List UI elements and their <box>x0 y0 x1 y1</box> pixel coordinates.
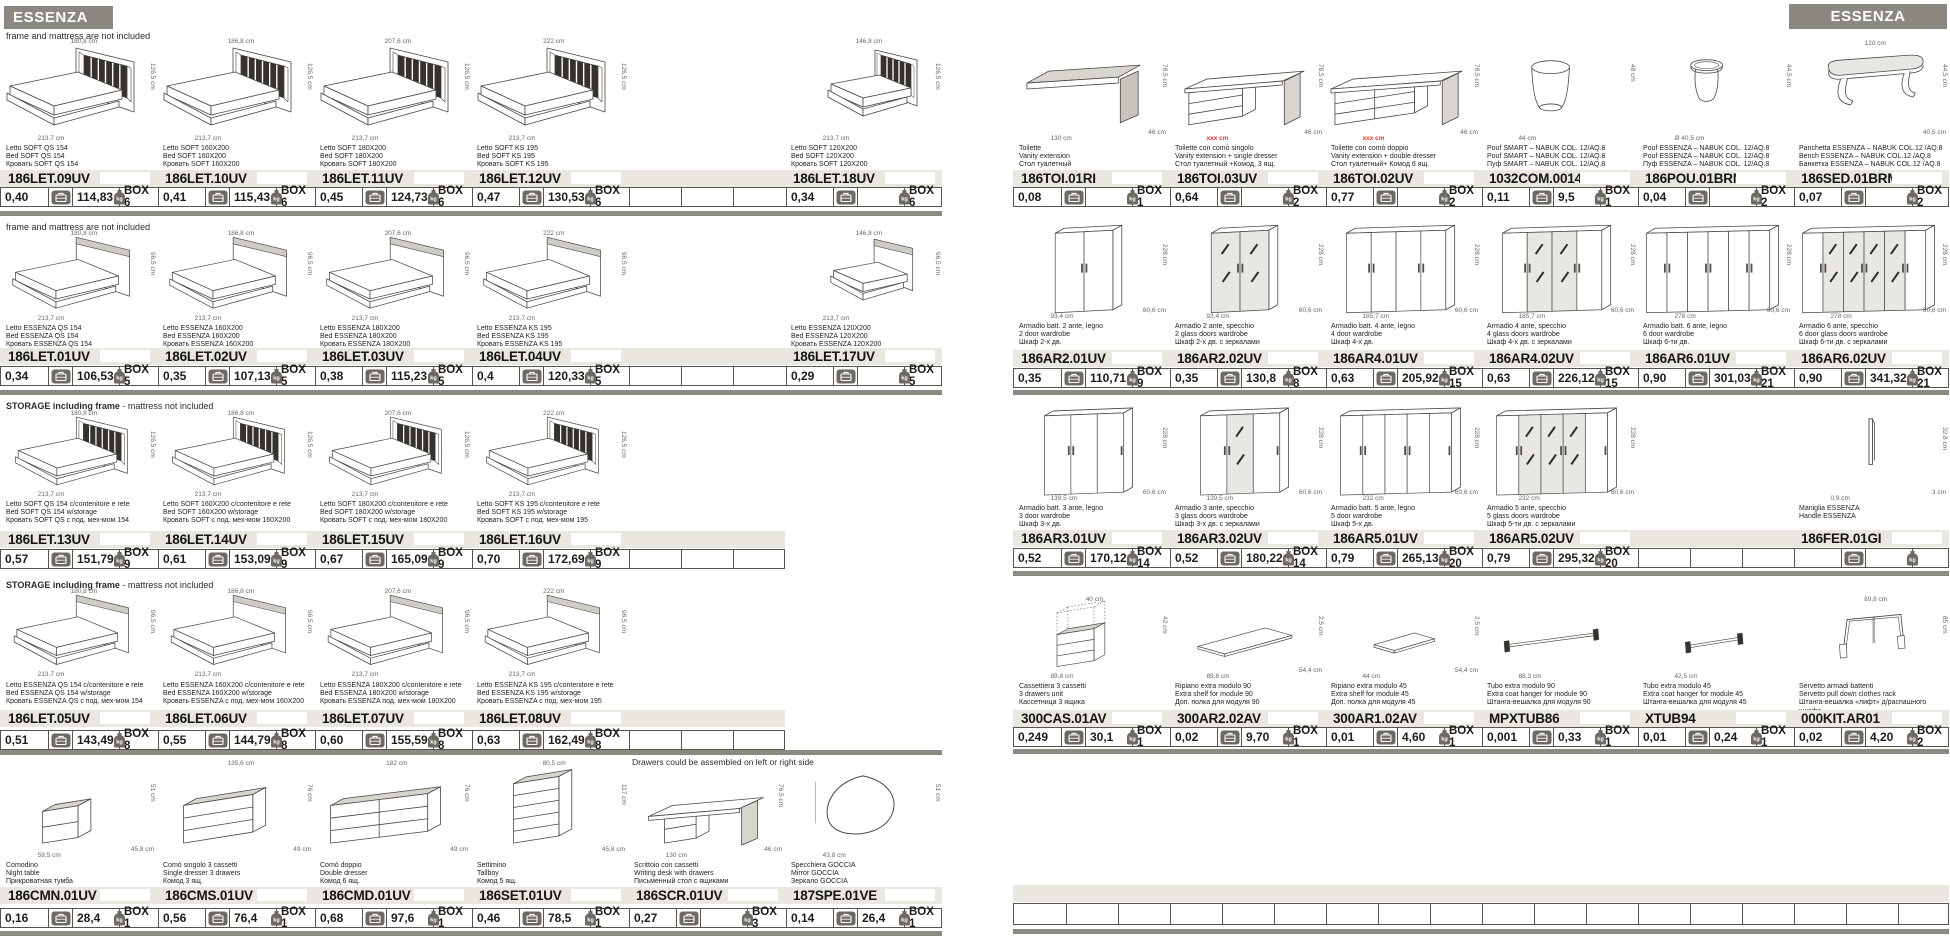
product-drawing-card: 146,8 cm126,5 cm213,7 cm <box>785 38 942 142</box>
price-box <box>100 889 150 901</box>
svg-text:kg: kg <box>1441 378 1447 384</box>
dimension-label: 89,8 cm <box>1864 596 1887 603</box>
product-desc-en: 2 glass doors wardrobe <box>1175 331 1323 339</box>
weight-value: 120,33 <box>548 369 585 383</box>
weight-icon: kg <box>270 189 283 205</box>
product-desc-en: 4 door wardrobe <box>1331 331 1479 339</box>
product-desc-ru: Шкаф 3-х дв. с зеркалами <box>1175 521 1323 529</box>
volume-icon-cell <box>1373 188 1397 206</box>
product-desc-ru: Шкаф 2-х дв. <box>1019 339 1167 347</box>
price-box <box>571 712 621 724</box>
volume-cell: 0,16 <box>1 909 48 927</box>
weight-value: 114,83 <box>77 190 113 204</box>
dimension-label: 96,5 cm <box>149 252 156 275</box>
product-code: 1032COM.00144 <box>1489 171 1589 186</box>
weight-icon: kg <box>584 551 597 567</box>
volume-icon-cell <box>1529 188 1553 206</box>
weight-value: 130,8 <box>1246 371 1276 385</box>
empty-cell <box>681 188 733 206</box>
weight-icon: kg <box>1594 189 1607 205</box>
product-code: XTUB94 <box>1645 711 1696 726</box>
weight-icon: kg <box>270 189 283 205</box>
dimension-label: 126,5 cm <box>306 431 313 458</box>
weight-cell: 0,33kg <box>1553 728 1600 746</box>
volume-icon <box>522 911 542 926</box>
svg-text:kg: kg <box>116 559 122 565</box>
weight-icon: kg <box>1906 370 1919 386</box>
weight-icon: kg <box>1282 370 1295 386</box>
volume-cell: 0,51 <box>1 731 48 749</box>
spec-row: 0,51143,49kgBOX 80,55144,79kgBOX 80,6015… <box>0 730 785 750</box>
weight-icon: kg <box>1750 370 1763 386</box>
code-band: 186AR3.01UV186AR3.02UV186AR5.01UV186AR5.… <box>1013 530 1949 547</box>
svg-text:kg: kg <box>744 918 750 924</box>
product-desc-en: Bed SOFT 180X200 w/storage <box>320 509 469 517</box>
weight-icon: kg <box>113 732 126 748</box>
weight-value: 162,49 <box>548 733 585 747</box>
section-divider-bar <box>0 931 942 936</box>
volume-icon <box>1220 371 1240 386</box>
empty-cell <box>1378 904 1430 924</box>
empty-cell <box>1274 904 1326 924</box>
dimension-label: 222 cm <box>543 38 564 45</box>
product-description: Armadio batt. 5 ante, legno5 door wardro… <box>1331 505 1479 530</box>
product-desc-it: Letto ESSENZA KS 195 c/contenitore e ret… <box>477 682 626 690</box>
weight-value: 226,12 <box>1558 371 1595 385</box>
product-desc-en: Double dresser <box>320 870 469 878</box>
product-drawing-card: 207,6 cm126,5 cm213,7 cm <box>314 410 471 498</box>
price-box <box>257 533 307 545</box>
volume-icon <box>365 369 385 384</box>
weight-icon: kg <box>1126 729 1139 745</box>
product-code: 186TOI.01RI <box>1021 171 1096 186</box>
product-desc-en: Bed ESSENZA 180X200 <box>320 333 469 341</box>
price-box <box>257 712 307 724</box>
volume-cell: 0,79 <box>1326 549 1373 567</box>
handle-drawing <box>1793 403 1949 502</box>
weight-cell: 120,33kg <box>543 367 590 385</box>
product-code: 186TOI.03UV <box>1177 171 1257 186</box>
volume-cell: 0,57 <box>1 550 48 568</box>
price-box <box>1892 172 1942 184</box>
weight-icon: kg <box>427 189 440 205</box>
product-drawing-card: 222 cm96,5 cm213,7 cm <box>471 588 628 678</box>
dimension-label: 186,8 cm <box>227 410 254 417</box>
ward5m-drawing <box>1481 403 1637 502</box>
dimension-label: 46 cm <box>1304 129 1322 136</box>
volume-cell: 0,47 <box>472 188 519 206</box>
volume-icon-cell <box>1685 188 1709 206</box>
weight-icon: kg <box>1438 729 1451 745</box>
product-desc-it: Toilette <box>1019 145 1167 153</box>
dimension-label: 89,8 cm <box>1206 673 1229 680</box>
weight-cell: 143,49kg <box>72 731 119 749</box>
volume-cell: 0,38 <box>315 367 362 385</box>
product-drawing-card: 2,5 cm89,8 cm54,4 cm <box>1169 596 1325 680</box>
product-desc-it: Scrittoio con cassetti <box>634 862 783 870</box>
weight-cell: 180,22kg <box>1241 549 1288 567</box>
weight-cell: 115,23kg <box>386 367 433 385</box>
dimension-label: 228 cm <box>1629 244 1636 265</box>
product-drawing-card: 228 cm93,4 cm60,6 cm <box>1169 220 1325 320</box>
product-drawing-card: 40 cm42 cm89,8 cm <box>1013 596 1169 680</box>
product-code: 186LET.11UV <box>322 171 403 186</box>
product-desc-it: Armadio batt. 4 ante, legno <box>1331 323 1479 331</box>
volume-cell: 0,63 <box>472 731 519 749</box>
product-desc-it: Comò doppio <box>320 862 469 870</box>
product-desc-en: Bed ESSENZA 120X200 <box>791 333 940 341</box>
product-drawing-card: 146,8 cm96,5 cm213,7 cm <box>785 230 942 322</box>
product-description: Armadio batt. 3 ante, legno3 door wardro… <box>1019 505 1167 530</box>
weight-icon: kg <box>1126 370 1139 386</box>
dimension-label: 60,6 cm <box>1143 489 1166 496</box>
volume-icon <box>208 369 228 384</box>
dimension-label: 60,6 cm <box>1143 307 1166 314</box>
product-desc-it: Ripiano extra modulo 45 <box>1331 683 1479 691</box>
weight-icon: kg <box>113 551 126 567</box>
weight-icon: kg <box>270 551 283 567</box>
volume-icon-cell <box>519 367 543 385</box>
product-description: Letto SOFT 160X200Bed SOFT 160X200Кроват… <box>163 145 312 170</box>
weight-icon: kg <box>1282 729 1295 745</box>
volume-icon <box>208 911 228 926</box>
dimension-label: 222 cm <box>543 588 564 595</box>
volume-cell: 0,56 <box>158 909 205 927</box>
dimension-label: 228 cm <box>1473 427 1480 448</box>
weight-icon: kg <box>427 732 440 748</box>
spec-row: 0,1628,4kgBOX 10,5676,4kgBOX 10,6897,6kg… <box>0 908 942 928</box>
spec-row: 0,40114,83kgBOX 60,41115,43kgBOX 60,4512… <box>0 187 942 207</box>
product-desc-it: Armadio 5 ante, specchio <box>1487 505 1635 513</box>
product-description: Maniglia ESSENZAHandle ESSENZA <box>1799 505 1947 521</box>
empty-cell <box>733 550 786 568</box>
product-desc-en: Tallboy <box>477 870 626 878</box>
empty-cell <box>733 731 786 749</box>
section-divider-bar <box>0 750 942 755</box>
bed-soft-drawing <box>157 410 314 498</box>
dimension-label: 48 cm <box>1629 64 1636 82</box>
product-desc-en: Bed ESSENZA QS 154 <box>6 333 155 341</box>
weight-cell: 76,4kg <box>229 909 276 927</box>
empty-code-band <box>1013 885 1949 902</box>
volume-cell <box>1794 549 1841 567</box>
dimension-label: 49 cm <box>450 846 468 853</box>
weight-icon: kg <box>898 910 911 926</box>
dimension-label: 213,7 cm <box>352 315 379 322</box>
weight-cell: 97,6kg <box>386 909 433 927</box>
product-desc-ru: Банкетка ESSENZA – NABUK COL.12 /AQ.8 <box>1799 161 1947 169</box>
volume-icon <box>51 369 71 384</box>
weight-icon: kg <box>1282 550 1295 566</box>
weight-value: 106,53 <box>77 369 114 383</box>
price-box <box>1892 352 1942 364</box>
svg-text:kg: kg <box>587 197 593 203</box>
dimension-label: 228 cm <box>1317 244 1324 265</box>
volume-icon-cell <box>1529 549 1553 567</box>
dimension-label: 43,8 cm <box>823 852 846 859</box>
product-desc-en: Bed ESSENZA KS 195 <box>477 333 626 341</box>
dimension-label: 60,6 cm <box>1455 489 1478 496</box>
weight-icon: kg <box>113 551 126 567</box>
dimension-label: 88,3 cm <box>1518 673 1541 680</box>
weight-icon: kg <box>270 368 283 384</box>
ward2-drawing <box>1013 220 1169 320</box>
volume-icon <box>1532 551 1552 566</box>
price-box <box>1424 352 1474 364</box>
volume-icon-cell <box>1529 369 1553 387</box>
volume-icon <box>1064 730 1084 745</box>
product-description: Letto ESSENZA 180X200Bed ESSENZA 180X200… <box>320 325 469 350</box>
weight-cell: 205,92kg <box>1397 369 1444 387</box>
product-description: Letto ESSENZA 160X200Bed ESSENZA 160X200… <box>163 325 312 350</box>
volume-icon <box>1532 371 1552 386</box>
weight-value: 115,23 <box>391 369 427 383</box>
product-desc-it: Letto SOFT 120X200 <box>791 145 940 153</box>
weight-icon: kg <box>427 910 440 926</box>
dimension-label: 213,7 cm <box>823 315 850 322</box>
product-desc-ru: Кровать ESSENZA под. мех-мом 180X200 <box>320 698 469 706</box>
svg-text:kg: kg <box>1597 737 1603 743</box>
weight-cell: 78,5kg <box>543 909 590 927</box>
volume-cell: 0,01 <box>1326 728 1373 746</box>
servetto-drawing <box>1793 596 1949 680</box>
weight-icon: kg <box>1126 370 1139 386</box>
weight-icon: kg <box>741 910 754 926</box>
product-drawing-card: 228 cm139,5 cm60,6 cm <box>1169 403 1325 502</box>
product-code: 186LET.15UV <box>322 532 404 547</box>
product-drawing-card: 186,8 cm126,5 cm213,7 cm <box>157 410 314 498</box>
weight-value: 341,32 <box>1870 371 1907 385</box>
dimension-label: 51 cm <box>149 784 156 802</box>
product-desc-ru: Кровать SOFT с под. мех-мом 180X200 <box>320 517 469 525</box>
product-description: Cassettiera 3 cassetti3 drawers unitКасс… <box>1019 683 1167 708</box>
dimension-label: 213,7 cm <box>509 491 536 498</box>
weight-cell: 124,73kg <box>386 188 433 206</box>
volume-icon-cell <box>205 550 229 568</box>
product-desc-it: Letto ESSENZA 180X200 c/contenitore e re… <box>320 682 469 690</box>
weight-icon: kg <box>1906 189 1919 205</box>
product-desc-ru: Доп. полка для модуля 90 <box>1175 699 1323 707</box>
weight-icon: kg <box>898 368 911 384</box>
bed-soft-drawing <box>314 410 471 498</box>
catalog-page-right: 78,5 cm130 cm46 cmToiletteVanity extensi… <box>1013 0 1950 941</box>
product-desc-it: Letto ESSENZA QS 154 <box>6 325 155 333</box>
product-code: 186AR6.01UV <box>1645 351 1730 366</box>
dimension-label: 232 cm <box>1518 495 1539 502</box>
spec-row: 0,52170,12kgBOX 140,52180,22kgBOX 140,79… <box>1013 548 1949 568</box>
weight-icon: kg <box>1594 729 1607 745</box>
ward3m-drawing <box>1169 403 1325 502</box>
svg-text:kg: kg <box>1129 737 1135 743</box>
weight-value: 0,24 <box>1714 730 1737 744</box>
product-description: Comò doppioDouble dresserКомод 6 ящ. <box>320 862 469 887</box>
volume-cell: 0,77 <box>1326 188 1373 206</box>
product-desc-it: Letto SOFT 180X200 c/contenitore e rete <box>320 501 469 509</box>
svg-text:kg: kg <box>587 376 593 382</box>
product-description: Letto ESSENZA QS 154Bed ESSENZA QS 154Кр… <box>6 325 155 350</box>
volume-cell: 0,45 <box>315 188 362 206</box>
svg-text:kg: kg <box>430 376 436 382</box>
product-drawing-card: 32,8 cm0,9 cm3 cm <box>1793 403 1949 502</box>
svg-text:kg: kg <box>1285 558 1291 564</box>
product-code: 186TOI.02UV <box>1333 171 1413 186</box>
product-desc-en: Bed ESSENZA 160X200 w/storage <box>163 690 312 698</box>
dimension-label: 135,6 cm <box>227 760 254 767</box>
volume-icon <box>1844 551 1864 566</box>
weight-icon: kg <box>1282 729 1295 745</box>
volume-icon-cell <box>1373 369 1397 387</box>
price-box <box>885 350 935 362</box>
product-code: 186LET.02UV <box>165 349 247 364</box>
dimension-label: 54,4 cm <box>1455 667 1478 674</box>
product-desc-en: Bed ESSENZA KS 195 w/storage <box>477 690 626 698</box>
weight-icon: kg <box>113 189 126 205</box>
svg-text:kg: kg <box>1753 197 1759 203</box>
empty-cell <box>681 550 733 568</box>
empty-cell <box>1534 904 1586 924</box>
volume-icon-cell <box>1217 728 1241 746</box>
dimension-label: 228 cm <box>1161 244 1168 265</box>
price-box <box>100 712 150 724</box>
product-desc-en: 6 door wardrobe <box>1643 331 1791 339</box>
dimension-label: 44 cm <box>1518 135 1536 142</box>
volume-cell: 0,40 <box>1 188 48 206</box>
weight-icon: kg <box>427 732 440 748</box>
price-box <box>1268 172 1318 184</box>
weight-cell: 9,70kg <box>1241 728 1288 746</box>
dimension-label: 80,5 cm <box>543 760 566 767</box>
dimension-label: 60,6 cm <box>1299 307 1322 314</box>
empty-cell <box>1794 904 1846 924</box>
product-drawing-card: 44,5 cmØ 40,5 cm <box>1637 40 1793 142</box>
dimension-label: 213,7 cm <box>38 315 65 322</box>
volume-cell: 0,35 <box>158 367 205 385</box>
product-description: Armadio batt. 6 ante, legno6 door wardro… <box>1643 323 1791 348</box>
weight-cell: 28,4kg <box>72 909 119 927</box>
product-desc-en: 3 glass doors wardrobe <box>1175 513 1323 521</box>
product-desc-en: 5 door wardrobe <box>1331 513 1479 521</box>
volume-icon-cell <box>205 188 229 206</box>
weight-value: 26,4 <box>862 911 885 925</box>
bed-soft-single-drawing <box>785 38 942 142</box>
product-desc-it: Armadio 3 ante, specchio <box>1175 505 1323 513</box>
dimension-label: 180,8 cm <box>70 38 97 45</box>
weight-cell: 107,13kg <box>229 367 276 385</box>
product-desc-ru: Комод 3 ящ. <box>163 878 312 886</box>
weight-value: 144,79 <box>234 733 271 747</box>
weight-value: 170,12 <box>1090 551 1127 565</box>
product-desc-ru: Зеркало GOCCIA <box>791 878 940 886</box>
dimension-label: 228 cm <box>1317 427 1324 448</box>
weight-icon: kg <box>584 368 597 384</box>
dimension-label: 96,5 cm <box>620 610 627 633</box>
weight-cell: 130,8kg <box>1241 369 1288 387</box>
desk-drawing <box>628 760 785 859</box>
svg-text:kg: kg <box>430 740 436 746</box>
product-desc-ru: Шкаф 6-ти дв. с зеркалами <box>1799 339 1947 347</box>
dimension-label: 207,6 cm <box>384 410 411 417</box>
product-drawing-card: 228 cm232 cm60,6 cm <box>1481 403 1637 502</box>
price-box <box>1268 352 1318 364</box>
volume-cell: 0,79 <box>1482 549 1529 567</box>
weight-cell: kg <box>857 367 904 385</box>
product-description: Letto SOFT QS 154Bed SOFT QS 154Кровать … <box>6 145 155 170</box>
dimension-label: 60,6 cm <box>1611 307 1634 314</box>
volume-cell: 0,90 <box>1794 369 1841 387</box>
dimension-label: 96,5 cm <box>306 610 313 633</box>
empty-cell <box>681 367 733 385</box>
dimension-label: 93,4 cm <box>1050 313 1073 320</box>
volume-cell: 0,61 <box>158 550 205 568</box>
weight-icon: kg <box>113 910 126 926</box>
volume-icon-cell <box>205 909 229 927</box>
weight-cell: 144,79kg <box>229 731 276 749</box>
weight-icon: kg <box>898 189 911 205</box>
weight-icon: kg <box>898 910 911 926</box>
volume-icon-cell <box>676 909 700 927</box>
product-description: Letto SOFT 180X200 c/contenitore e reteB… <box>320 501 469 526</box>
dimension-label: 96,5 cm <box>306 252 313 275</box>
volume-icon-cell <box>519 188 543 206</box>
volume-cell: 0,35 <box>1014 369 1061 387</box>
product-desc-it: Armadio 4 ante, specchio <box>1487 323 1635 331</box>
product-desc-ru: Письменный стол с ящиками <box>634 878 783 886</box>
volume-icon-cell <box>1061 369 1085 387</box>
product-drawing-card: 228 cm139,5 cm60,6 cm <box>1013 403 1169 502</box>
dimension-label: 146,8 cm <box>855 230 882 237</box>
weight-icon: kg <box>1750 370 1763 386</box>
product-code: 186AR6.02UV <box>1801 351 1886 366</box>
price-box <box>1736 712 1786 724</box>
product-code: 186LET.16UV <box>479 532 561 547</box>
product-desc-it: Letto SOFT 180X200 <box>320 145 469 153</box>
weight-cell: 9,5kg <box>1553 188 1600 206</box>
product-code: 186LET.03UV <box>322 349 404 364</box>
product-desc-en: Extra coat hanger for module 45 <box>1643 691 1791 699</box>
volume-icon-cell <box>205 731 229 749</box>
volume-cell: 0,27 <box>629 909 676 927</box>
dimension-label: 213,7 cm <box>195 315 222 322</box>
product-desc-ru: Стол туалетный +Комод, 3 ящ. <box>1175 161 1323 169</box>
product-desc-it: Letto ESSENZA 120X200 <box>791 325 940 333</box>
svg-text:kg: kg <box>1441 197 1447 203</box>
product-desc-ru: Прикроватная тумба <box>6 878 155 886</box>
dimension-label: 96,5 cm <box>620 252 627 275</box>
dimension-label: 126,5 cm <box>934 63 941 90</box>
dimension-label: 40,5 cm <box>1923 129 1946 136</box>
volume-icon-cell <box>833 188 857 206</box>
empty-cell <box>1846 904 1898 924</box>
svg-text:kg: kg <box>587 559 593 565</box>
product-desc-ru: Стол туалетный+ Комод 6 ящ. <box>1331 161 1479 169</box>
volume-icon-cell <box>1373 728 1397 746</box>
dimension-label: 60,6 cm <box>1767 307 1790 314</box>
weight-icon: kg <box>427 189 440 205</box>
price-box <box>1112 532 1162 544</box>
product-desc-ru: Стол туалетный <box>1019 161 1167 169</box>
empty-cell <box>733 367 786 385</box>
dimension-label: Ø 40,5 cm <box>1674 135 1704 142</box>
product-description: Letto ESSENZA KS 195 c/contenitore e ret… <box>477 682 626 707</box>
bed-soft-drawing <box>471 410 628 498</box>
product-description: Tubo extra modulo 45Extra coat hanger fo… <box>1643 683 1791 708</box>
product-desc-ru: Кровать SOFT 160X200 <box>163 161 312 169</box>
dimension-label: 182 cm <box>386 760 407 767</box>
price-box <box>257 172 307 184</box>
empty-cell <box>1898 904 1950 924</box>
volume-icon <box>51 911 71 926</box>
product-drawing-card: 180,8 cm96,5 cm213,7 cm <box>0 588 157 678</box>
